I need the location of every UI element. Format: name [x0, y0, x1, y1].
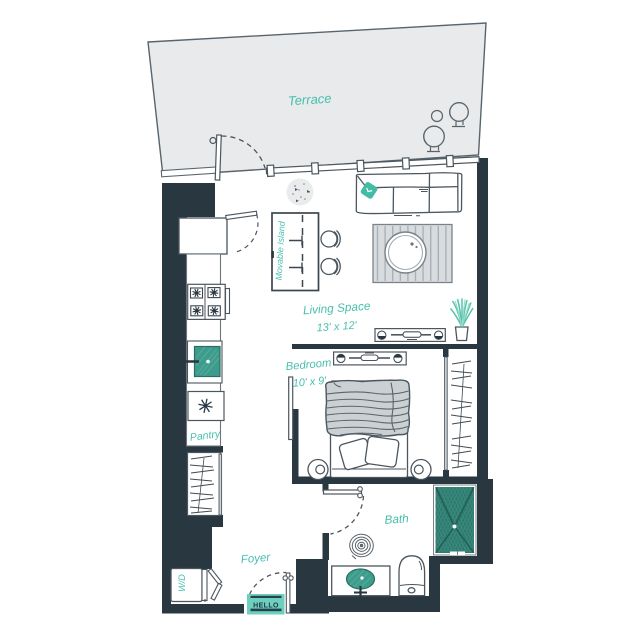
svg-text:Bath: Bath: [384, 511, 410, 527]
svg-text:HELLO: HELLO: [253, 602, 279, 609]
svg-text:Terrace: Terrace: [287, 91, 332, 109]
svg-text:W/D: W/D: [177, 574, 187, 592]
